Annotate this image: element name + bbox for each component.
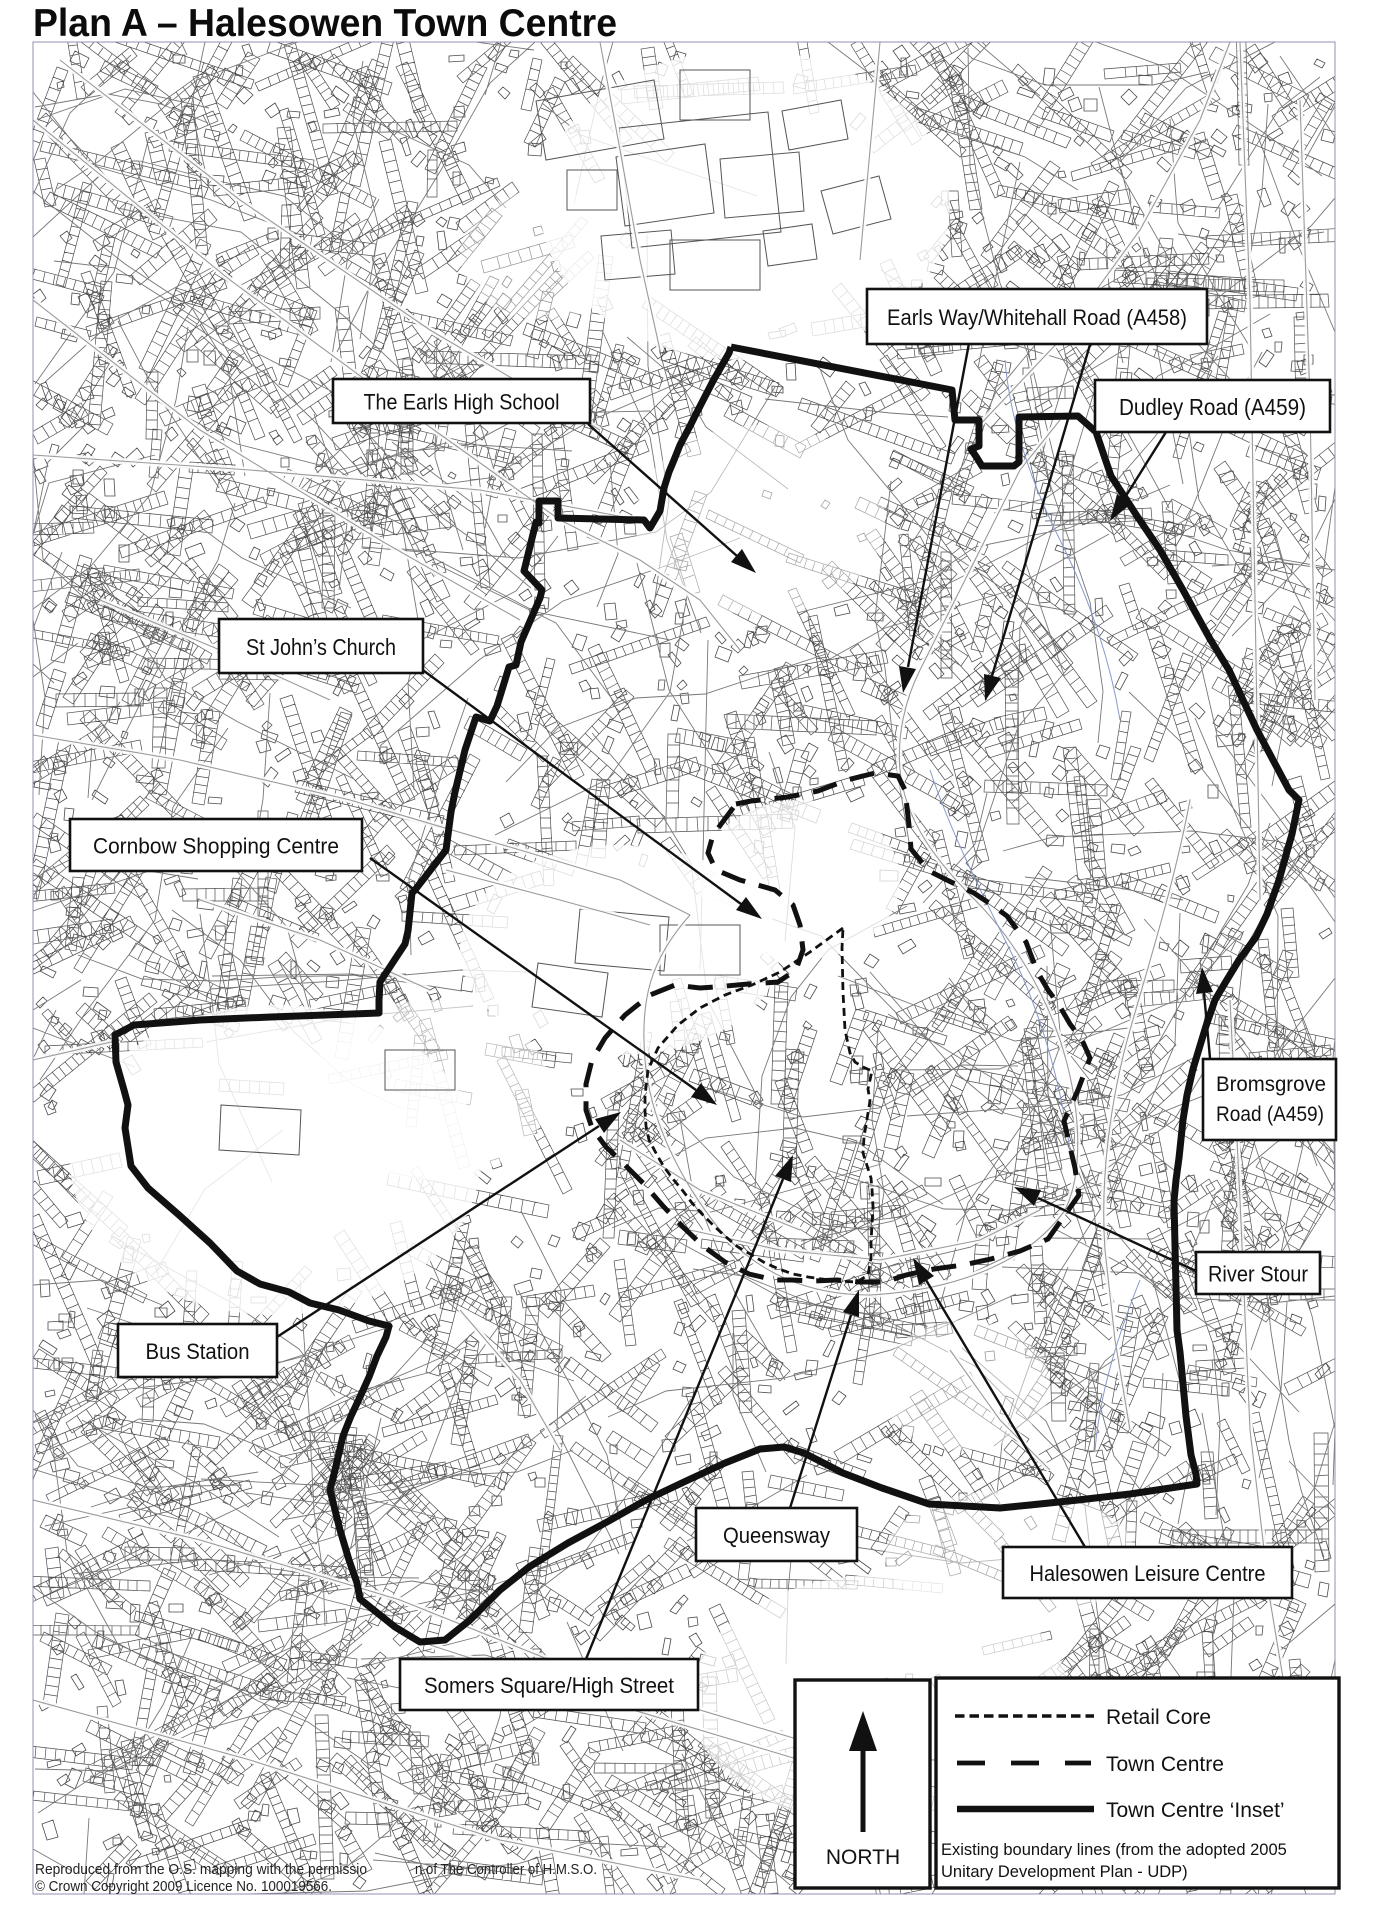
svg-text:Road (A459): Road (A459) (1216, 1103, 1324, 1126)
svg-text:Plan A – Halesowen Town Centre: Plan A – Halesowen Town Centre (33, 2, 617, 45)
svg-text:Queensway: Queensway (723, 1523, 830, 1548)
svg-text:n of The Controller of H.M.S.O: n of The Controller of H.M.S.O. (415, 1862, 597, 1878)
svg-text:Somers Square/High Street: Somers Square/High Street (424, 1673, 674, 1698)
svg-text:© Crown Copyright 2009 Licence: © Crown Copyright 2009 Licence No. 10001… (35, 1879, 332, 1895)
svg-text:Cornbow Shopping Centre: Cornbow Shopping Centre (93, 834, 339, 859)
svg-text:Unitary Development Plan - UDP: Unitary Development Plan - UDP) (941, 1863, 1188, 1881)
svg-text:River Stour: River Stour (1208, 1262, 1308, 1287)
svg-text:Town Centre ‘Inset’: Town Centre ‘Inset’ (1106, 1799, 1285, 1822)
svg-text:Town Centre: Town Centre (1106, 1753, 1224, 1776)
svg-text:Dudley Road (A459): Dudley Road (A459) (1119, 394, 1306, 420)
svg-text:NORTH: NORTH (826, 1846, 900, 1869)
svg-text:Bromsgrove: Bromsgrove (1216, 1073, 1326, 1096)
svg-text:The Earls High School: The Earls High School (364, 390, 560, 415)
svg-text:Existing boundary lines (from: Existing boundary lines (from the adopte… (941, 1841, 1287, 1859)
svg-text:Bus Station: Bus Station (146, 1339, 250, 1364)
svg-text:Retail Core: Retail Core (1106, 1706, 1211, 1729)
svg-text:Halesowen Leisure Centre: Halesowen Leisure Centre (1030, 1561, 1266, 1586)
svg-text:Reproduced from the O.S. mappi: Reproduced from the O.S. mapping with th… (35, 1862, 367, 1878)
svg-text:St John’s Church: St John’s Church (246, 634, 396, 660)
svg-text:Earls Way/Whitehall Road (A458: Earls Way/Whitehall Road (A458) (887, 305, 1187, 330)
